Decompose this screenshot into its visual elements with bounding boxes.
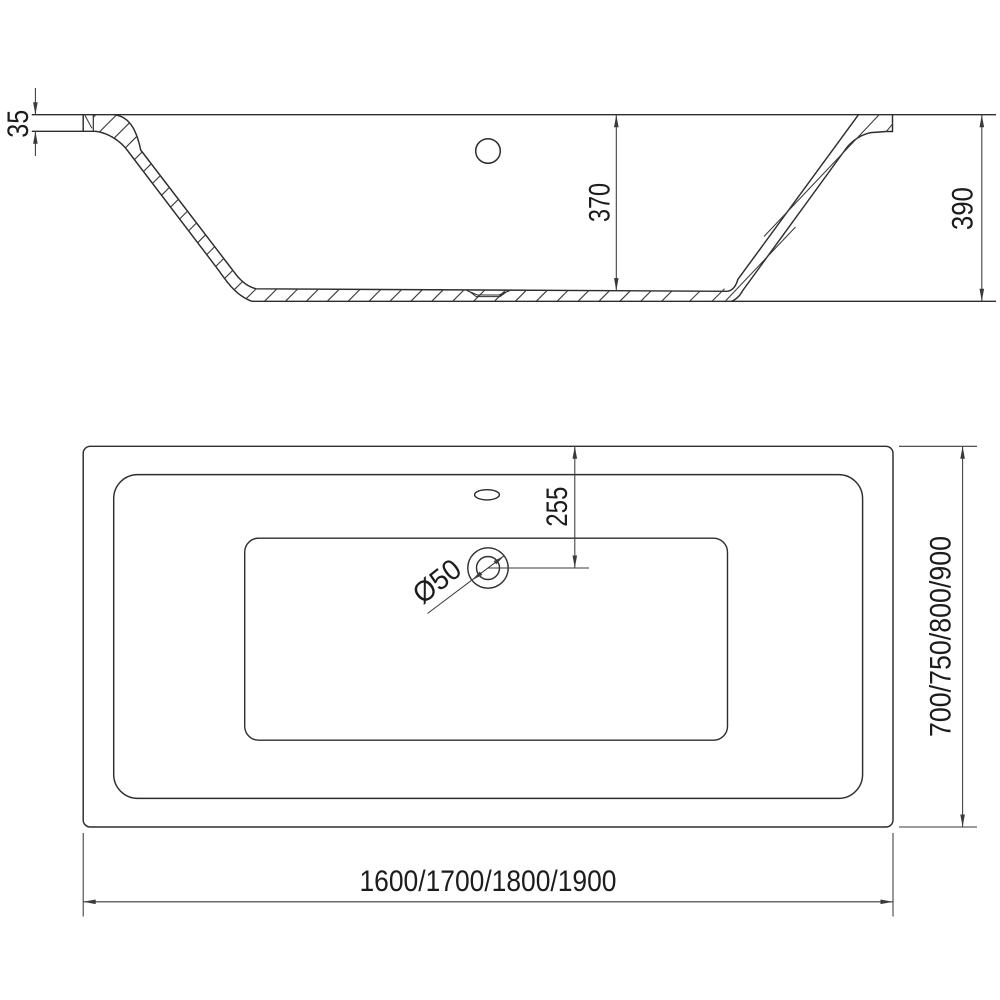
svg-text:700/750/800/900: 700/750/800/900: [925, 536, 958, 737]
svg-text:1600/1700/1800/1900: 1600/1700/1800/1900: [360, 865, 617, 898]
svg-text:370: 370: [584, 183, 617, 222]
svg-text:35: 35: [2, 110, 35, 138]
svg-text:255: 255: [541, 487, 574, 527]
svg-text:390: 390: [947, 187, 980, 230]
